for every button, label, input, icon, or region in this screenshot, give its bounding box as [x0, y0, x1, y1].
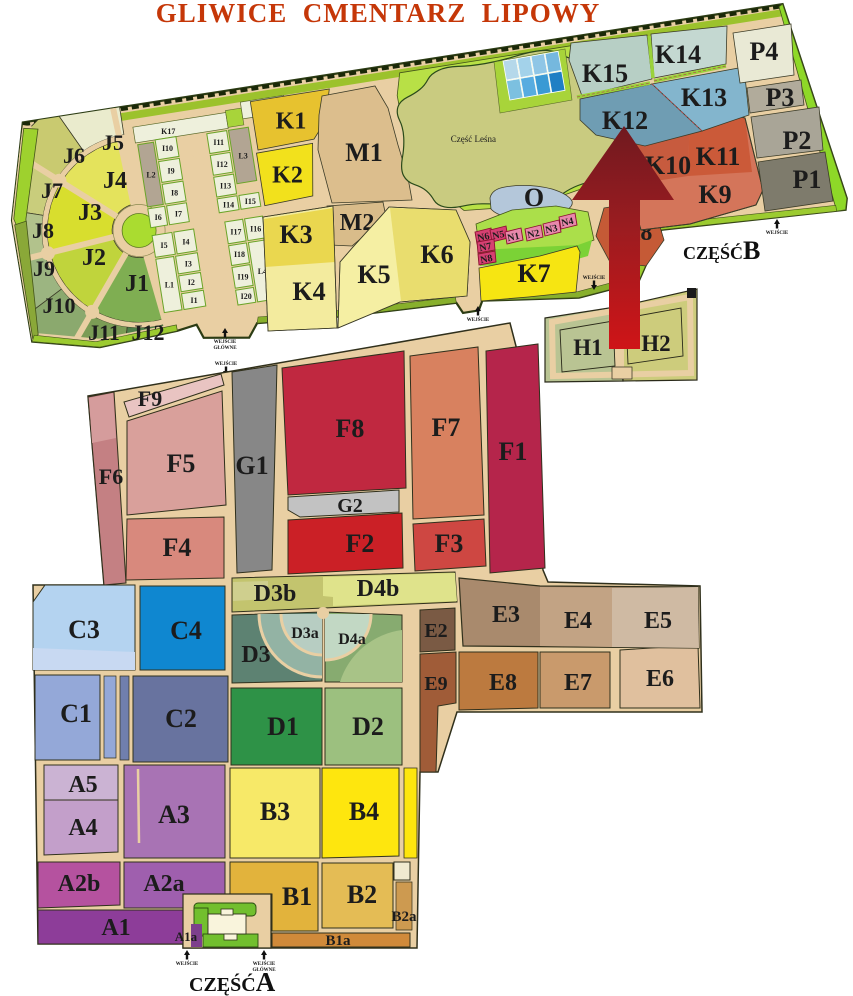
svg-text:B1: B1	[282, 882, 312, 911]
svg-text:F5: F5	[167, 449, 196, 478]
svg-text:J2: J2	[82, 245, 106, 271]
svg-text:F6: F6	[99, 464, 123, 489]
svg-text:M1: M1	[345, 138, 383, 167]
svg-text:I12: I12	[217, 160, 228, 169]
svg-text:J6: J6	[63, 143, 85, 168]
svg-text:I9: I9	[168, 166, 175, 175]
svg-text:F3: F3	[435, 529, 464, 558]
svg-text:F7: F7	[432, 413, 461, 442]
svg-text:A2a: A2a	[143, 871, 184, 897]
svg-text:B2a: B2a	[391, 909, 417, 925]
svg-text:C2: C2	[165, 704, 197, 733]
svg-text:B1a: B1a	[325, 933, 351, 949]
svg-text:CZĘŚĆB: CZĘŚĆB	[683, 236, 760, 265]
svg-text:J3: J3	[78, 200, 102, 226]
svg-text:WEJŚCIE: WEJŚCIE	[214, 339, 237, 345]
svg-text:WEJŚCIE: WEJŚCIE	[583, 275, 606, 281]
svg-text:WEJŚCIE: WEJŚCIE	[766, 230, 789, 236]
svg-text:F2: F2	[346, 529, 375, 558]
svg-text:GŁÓWNE: GŁÓWNE	[213, 345, 237, 351]
svg-text:B4: B4	[349, 797, 379, 826]
svg-text:E6: E6	[646, 666, 674, 692]
svg-text:I10: I10	[162, 144, 173, 153]
svg-text:K5: K5	[357, 260, 390, 289]
svg-text:D3b: D3b	[254, 581, 297, 607]
svg-text:K9: K9	[698, 180, 731, 209]
svg-text:A3: A3	[158, 800, 190, 829]
svg-text:K11: K11	[696, 142, 741, 171]
svg-text:A1a: A1a	[175, 929, 198, 944]
svg-text:I6: I6	[155, 213, 162, 222]
svg-text:J1: J1	[125, 271, 149, 297]
svg-text:J9: J9	[33, 256, 55, 281]
svg-text:F1: F1	[499, 437, 528, 466]
svg-text:K1: K1	[276, 109, 307, 135]
svg-text:WEJŚCIE: WEJŚCIE	[467, 317, 490, 323]
svg-text:Część Leśna: Część Leśna	[451, 134, 496, 144]
svg-text:J7: J7	[41, 178, 63, 203]
svg-text:I13: I13	[220, 182, 231, 191]
svg-text:I18: I18	[234, 250, 245, 259]
svg-text:WEJŚCIE: WEJŚCIE	[176, 961, 199, 967]
svg-text:J10: J10	[43, 293, 76, 318]
svg-text:I20: I20	[241, 292, 252, 301]
svg-text:J12: J12	[132, 320, 165, 345]
svg-text:A4: A4	[68, 815, 97, 841]
svg-text:K3: K3	[279, 220, 312, 249]
svg-text:P1: P1	[793, 165, 822, 194]
svg-text:J5: J5	[102, 130, 124, 155]
svg-text:I11: I11	[213, 138, 224, 147]
svg-text:GLIWICE CMENTARZ LIPOWY: GLIWICE CMENTARZ LIPOWY	[156, 0, 601, 28]
svg-text:I8: I8	[171, 189, 178, 198]
svg-text:I16: I16	[250, 224, 261, 233]
svg-text:P2: P2	[783, 126, 812, 155]
svg-text:J8: J8	[32, 218, 54, 243]
svg-text:WEJŚCIE: WEJŚCIE	[215, 361, 238, 367]
svg-text:E8: E8	[489, 670, 517, 696]
svg-text:A5: A5	[68, 772, 97, 798]
svg-text:L1: L1	[165, 281, 174, 290]
svg-text:C1: C1	[60, 699, 92, 728]
svg-text:E2: E2	[424, 620, 447, 642]
svg-text:C4: C4	[170, 616, 202, 645]
svg-text:B2: B2	[347, 880, 377, 909]
svg-text:K13: K13	[681, 83, 727, 112]
svg-text:C3: C3	[68, 615, 100, 644]
svg-text:K7: K7	[517, 259, 550, 288]
svg-text:D4a: D4a	[338, 631, 366, 648]
svg-text:A2b: A2b	[58, 871, 101, 897]
svg-text:D2: D2	[352, 712, 384, 741]
svg-text:E4: E4	[564, 608, 592, 634]
svg-text:E5: E5	[644, 608, 672, 634]
svg-text:K15: K15	[582, 59, 628, 88]
svg-text:I15: I15	[245, 197, 256, 206]
svg-text:CZĘŚĆA: CZĘŚĆA	[189, 967, 276, 996]
svg-text:K4: K4	[292, 277, 325, 306]
svg-text:I4: I4	[182, 237, 189, 246]
svg-text:E7: E7	[564, 670, 592, 696]
svg-text:J4: J4	[103, 168, 127, 194]
svg-text:L2: L2	[146, 171, 155, 180]
svg-text:K14: K14	[655, 40, 701, 69]
svg-text:H1: H1	[573, 335, 602, 360]
svg-text:A1: A1	[101, 915, 130, 941]
svg-text:F9: F9	[138, 386, 162, 411]
svg-text:I17: I17	[230, 227, 241, 236]
svg-text:I2: I2	[188, 278, 195, 287]
svg-text:B3: B3	[260, 797, 290, 826]
svg-text:F8: F8	[336, 414, 365, 443]
svg-text:I5: I5	[161, 241, 168, 250]
svg-text:L3: L3	[238, 151, 247, 160]
svg-text:D3a: D3a	[291, 625, 319, 642]
svg-text:G2: G2	[337, 495, 363, 517]
svg-text:G1: G1	[235, 451, 268, 480]
svg-text:P4: P4	[750, 37, 779, 66]
svg-text:P3: P3	[766, 83, 795, 112]
svg-text:E3: E3	[492, 602, 520, 628]
svg-text:I1: I1	[191, 296, 198, 305]
svg-text:I14: I14	[223, 200, 234, 209]
svg-text:K6: K6	[420, 240, 453, 269]
svg-text:H2: H2	[641, 331, 670, 356]
svg-text:I7: I7	[175, 210, 182, 219]
svg-text:D1: D1	[267, 712, 299, 741]
svg-text:K2: K2	[272, 163, 303, 189]
svg-text:I3: I3	[185, 259, 192, 268]
svg-text:E9: E9	[424, 673, 447, 695]
svg-text:F4: F4	[163, 533, 192, 562]
svg-text:J11: J11	[88, 320, 120, 345]
svg-text:I19: I19	[237, 272, 248, 281]
svg-text:K17: K17	[161, 127, 175, 136]
svg-text:D4b: D4b	[357, 576, 400, 602]
